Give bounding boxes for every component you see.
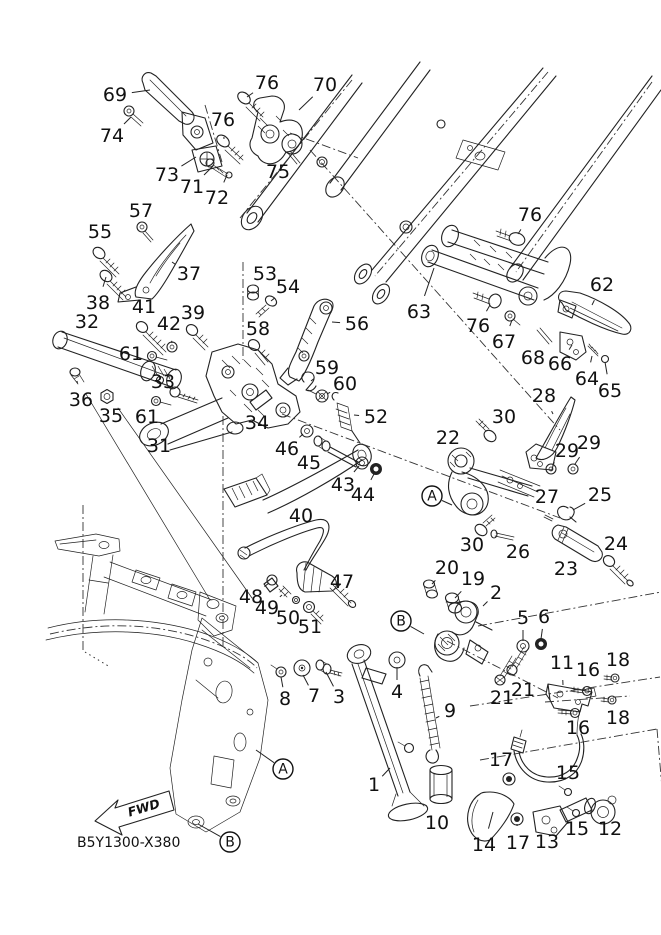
callout-22: 22 <box>436 427 460 449</box>
callout-15: 15 <box>565 818 589 840</box>
callout-number: 65 <box>598 380 622 402</box>
callout-40: 40 <box>289 505 313 527</box>
leader-line <box>569 345 572 350</box>
callout-55: 55 <box>88 221 112 243</box>
callout-number: 44 <box>351 484 375 506</box>
callout-76: 76 <box>466 305 490 337</box>
view-ref-letter: B <box>225 835 235 851</box>
callout-16: 16 <box>576 659 600 681</box>
leader-line <box>436 716 439 718</box>
callout-5: 5 <box>517 607 529 641</box>
callout-number: 12 <box>598 818 622 840</box>
leader-line <box>172 262 175 264</box>
callout-number: 26 <box>506 541 530 563</box>
callout-number: 76 <box>255 72 279 94</box>
parts-diagram-canvas: FWD B5Y1300-X380 69767074767371727557553… <box>0 0 661 935</box>
callout-10: 10 <box>425 812 449 834</box>
leader-line <box>271 298 275 301</box>
callout-47: 47 <box>330 571 354 593</box>
callout-16: 16 <box>566 717 590 739</box>
callout-number: 17 <box>489 749 513 771</box>
callout-number: 53 <box>253 263 277 285</box>
callout-number: 36 <box>69 389 93 411</box>
callout-number: 8 <box>279 688 291 710</box>
callout-27: 27 <box>535 486 559 508</box>
callout-number: 40 <box>289 505 313 527</box>
leader-line <box>332 322 340 323</box>
callout-number: 33 <box>151 371 175 393</box>
callout-number: 10 <box>425 812 449 834</box>
diagram-code: B5Y1300-X380 <box>77 835 180 851</box>
callout-7: 7 <box>303 675 320 707</box>
leader-line <box>591 356 592 362</box>
callout-19: 19 <box>455 568 485 598</box>
callout-50: 50 <box>276 607 300 629</box>
callout-58: 58 <box>246 318 270 340</box>
callout-number: 15 <box>565 818 589 840</box>
callout-65: 65 <box>598 362 622 402</box>
callout-37: 37 <box>172 262 201 285</box>
callout-number: 50 <box>276 607 300 629</box>
view-ref-B: B <box>198 824 240 852</box>
callout-number: 39 <box>181 302 205 324</box>
callout-6: 6 <box>538 606 550 639</box>
callout-number: 30 <box>460 534 484 556</box>
callout-1: 1 <box>368 768 390 796</box>
callout-number: 1 <box>368 774 380 796</box>
callout-number: 72 <box>205 187 229 209</box>
callout-24: 24 <box>604 533 628 555</box>
callout-number: 68 <box>521 347 545 369</box>
callout-25: 25 <box>573 484 612 510</box>
frame-art <box>46 394 268 832</box>
leader-line <box>280 595 282 597</box>
callout-76: 76 <box>247 72 279 97</box>
callout-39: 39 <box>181 302 205 324</box>
leader-line <box>326 672 333 686</box>
callout-11: 11 <box>550 652 574 685</box>
callout-number: 55 <box>88 221 112 243</box>
callout-number: 27 <box>535 486 559 508</box>
stand-bracket-art <box>271 580 661 698</box>
callout-67: 67 <box>492 320 516 353</box>
callout-number: 32 <box>75 311 99 333</box>
leader-line <box>181 157 196 166</box>
callout-18: 18 <box>606 707 630 729</box>
callout-number: 20 <box>435 557 459 579</box>
callout-number: 25 <box>588 484 612 506</box>
callout-number: 76 <box>466 315 490 337</box>
view-ref-A: A <box>256 750 293 779</box>
callout-number: 76 <box>518 204 542 226</box>
callout-number: 16 <box>576 659 600 681</box>
leader-line <box>573 503 585 510</box>
callout-69: 69 <box>103 84 150 106</box>
callout-number: 74 <box>100 125 124 147</box>
callout-number: 52 <box>364 406 388 428</box>
callout-2: 2 <box>483 582 502 606</box>
callout-number: 58 <box>246 318 270 340</box>
callout-75: 75 <box>266 161 290 183</box>
callout-number: 23 <box>554 558 578 580</box>
callout-number: 11 <box>550 652 574 674</box>
callout-number: 57 <box>129 200 153 222</box>
callout-14: 14 <box>472 812 496 856</box>
callout-68: 68 <box>521 347 545 369</box>
callout-54: 54 <box>271 276 300 301</box>
callout-number: 45 <box>297 452 321 474</box>
callout-number: 6 <box>538 606 550 628</box>
callout-number: 54 <box>276 276 300 298</box>
fwd-arrow: FWD <box>95 791 174 835</box>
callout-number: 75 <box>266 161 290 183</box>
callout-number: 60 <box>333 373 357 395</box>
callout-number: 62 <box>590 274 614 296</box>
callout-number: 42 <box>157 313 181 335</box>
callout-13: 13 <box>535 831 559 853</box>
leader-line <box>299 97 313 110</box>
view-ref-B: B <box>391 611 424 634</box>
callout-76: 76 <box>211 109 235 139</box>
callout-34: 34 <box>245 412 269 434</box>
leader-line <box>124 117 131 124</box>
callout-number: 16 <box>566 717 590 739</box>
callout-56: 56 <box>332 313 369 335</box>
side-stand-art <box>345 641 452 824</box>
callout-number: 76 <box>211 109 235 131</box>
callout-3: 3 <box>326 672 345 708</box>
callout-12: 12 <box>598 818 622 840</box>
view-ref-letter: A <box>278 762 288 778</box>
callout-number: 4 <box>391 681 403 703</box>
callout-number: 21 <box>511 679 535 701</box>
callout-number: 66 <box>548 353 572 375</box>
callout-26: 26 <box>506 541 530 563</box>
callout-61: 61 <box>135 406 159 428</box>
callout-number: 14 <box>472 834 496 856</box>
callout-53: 53 <box>253 263 277 285</box>
leader-line <box>281 677 283 687</box>
leader-line <box>592 300 594 305</box>
callout-32: 32 <box>75 311 99 333</box>
callout-number: 19 <box>461 568 485 590</box>
leader-line <box>541 629 542 639</box>
view-ref-letter: B <box>396 614 406 630</box>
callout-number: 17 <box>506 832 530 854</box>
callout-23: 23 <box>554 558 578 580</box>
callout-number: 2 <box>490 582 502 604</box>
callout-number: 73 <box>155 164 179 186</box>
leader-line <box>605 362 607 374</box>
callout-number: 5 <box>517 607 529 629</box>
callout-52: 52 <box>354 406 388 428</box>
callout-45: 45 <box>297 452 321 474</box>
leader-line <box>483 601 488 606</box>
leader-line <box>424 268 434 296</box>
callout-15: 15 <box>556 762 580 784</box>
callout-number: 61 <box>119 343 143 365</box>
leader-line <box>382 768 390 776</box>
leader-line <box>442 501 452 505</box>
callout-20: 20 <box>432 557 459 584</box>
callout-number: 61 <box>135 406 159 428</box>
callout-number: 56 <box>345 313 369 335</box>
callout-number: 70 <box>313 74 337 96</box>
callout-number: 18 <box>606 707 630 729</box>
callout-57: 57 <box>129 200 153 222</box>
view-ref-A: A <box>422 486 452 506</box>
callout-42: 42 <box>157 313 181 343</box>
parts-diagram-page: FWD B5Y1300-X380 69767074767371727557553… <box>0 0 661 935</box>
callout-30: 30 <box>492 406 516 428</box>
callout-29: 29 <box>553 440 579 464</box>
callout-number: 24 <box>604 533 628 555</box>
leader-line <box>303 675 308 685</box>
callout-41: 41 <box>132 296 156 318</box>
callout-62: 62 <box>590 274 614 305</box>
callout-number: 29 <box>577 432 601 454</box>
callout-number: 69 <box>103 84 127 106</box>
callout-4: 4 <box>391 667 403 703</box>
callout-35: 35 <box>99 405 123 427</box>
callout-72: 72 <box>205 175 229 209</box>
callout-63: 63 <box>407 268 434 323</box>
callout-8: 8 <box>279 677 291 710</box>
callout-21: 21 <box>511 674 535 701</box>
callout-38: 38 <box>86 277 110 314</box>
leader-line <box>371 474 374 480</box>
callout-number: 29 <box>555 440 579 462</box>
callout-number: 18 <box>606 649 630 671</box>
callout-61: 61 <box>119 343 143 365</box>
callout-28: 28 <box>532 385 556 414</box>
callout-9: 9 <box>436 700 456 722</box>
callout-17: 17 <box>489 749 513 771</box>
leader-line <box>552 411 553 414</box>
callout-70: 70 <box>299 74 337 110</box>
callout-number: 28 <box>532 385 556 407</box>
callout-number: 47 <box>330 571 354 593</box>
callout-33: 33 <box>151 371 175 393</box>
callout-number: 51 <box>298 616 322 638</box>
callout-30: 30 <box>460 534 484 556</box>
callout-number: 46 <box>275 438 299 460</box>
callout-number: 41 <box>132 296 156 318</box>
callout-31: 31 <box>147 435 171 457</box>
leader-line <box>488 812 493 829</box>
callout-64: 64 <box>575 356 599 390</box>
callout-number: 31 <box>147 435 171 457</box>
callout-number: 3 <box>333 686 345 708</box>
callout-74: 74 <box>100 117 131 147</box>
callout-18: 18 <box>606 649 630 671</box>
callout-number: 7 <box>308 685 320 707</box>
callout-17: 17 <box>506 824 530 854</box>
callout-36: 36 <box>69 381 93 411</box>
leader-line <box>411 626 424 634</box>
view-ref-letter: A <box>427 489 437 505</box>
callout-number: 67 <box>492 331 516 353</box>
callout-number: 22 <box>436 427 460 449</box>
callout-number: 30 <box>492 406 516 428</box>
callout-number: 13 <box>535 831 559 853</box>
callout-number: 71 <box>180 176 204 198</box>
callout-number: 15 <box>556 762 580 784</box>
callout-number: 37 <box>177 263 201 285</box>
leader-line <box>486 305 490 311</box>
callout-number: 64 <box>575 368 599 390</box>
callout-number: 34 <box>245 412 269 434</box>
callout-number: 9 <box>444 700 456 722</box>
callout-number: 35 <box>99 405 123 427</box>
callout-number: 63 <box>407 301 431 323</box>
callout-51: 51 <box>298 616 322 638</box>
